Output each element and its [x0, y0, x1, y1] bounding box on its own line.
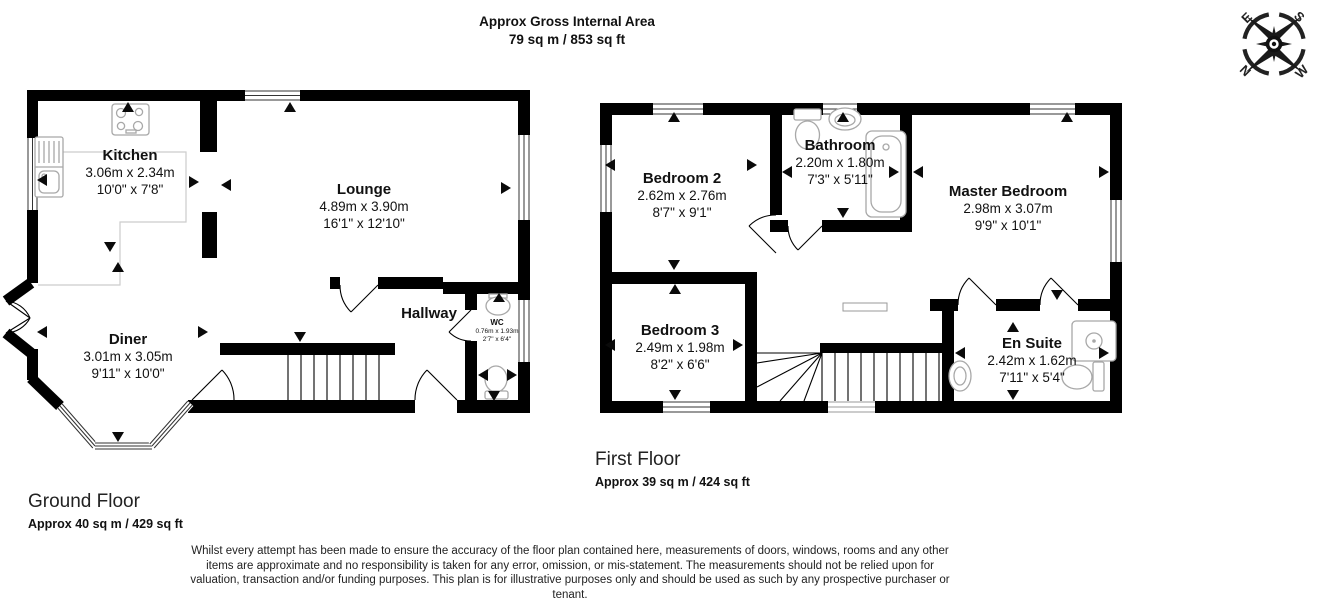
master-bedroom-name: Master Bedroom [949, 183, 1067, 201]
kitchen-name: Kitchen [85, 147, 174, 165]
gross-internal-area-title: Approx Gross Internal Area 79 sq m / 853… [479, 13, 655, 49]
gia-title-line: Approx Gross Internal Area [479, 14, 655, 29]
ensuite-metric: 2.42m x 1.62m [987, 353, 1076, 369]
ground-floor-doors [6, 285, 471, 400]
compass-hub-dot [1272, 42, 1276, 46]
ground-floor-area: Approx 40 sq m / 429 sq ft [28, 517, 183, 531]
kitchen-sink-unit [35, 137, 63, 197]
ground-floor-title: Ground Floor [28, 491, 140, 513]
room-label-hallway: Hallway [401, 305, 457, 323]
wc-metric: 0.76m x 1.93m [476, 328, 519, 336]
room-label-kitchen: Kitchen 3.06m x 2.34m 10'0" x 7'8" [85, 147, 174, 198]
diner-imperial: 9'11" x 10'0" [83, 366, 172, 382]
diner-name: Diner [83, 331, 172, 349]
bedroom2-imperial: 8'7" x 9'1" [637, 205, 726, 221]
room-label-bedroom3: Bedroom 3 2.49m x 1.98m 8'2" x 6'6" [635, 322, 724, 373]
wc-name: WC [476, 318, 519, 328]
lounge-metric: 4.89m x 3.90m [319, 199, 408, 215]
hallway-name: Hallway [401, 305, 457, 323]
room-label-ensuite: En Suite 2.42m x 1.62m 7'11" x 5'4" [987, 335, 1076, 386]
ground-floor-plan [0, 85, 565, 475]
compass-rose-icon: E S W N [1233, 2, 1315, 86]
wc-imperial: 2'7" x 6'4" [476, 336, 519, 344]
floor-plan-page: Approx Gross Internal Area 79 sq m / 853… [0, 0, 1320, 601]
bedroom3-imperial: 8'2" x 6'6" [635, 357, 724, 373]
master-bedroom-metric: 2.98m x 3.07m [949, 201, 1067, 217]
gia-subtitle-line: 79 sq m / 853 sq ft [509, 32, 625, 47]
room-label-master-bedroom: Master Bedroom 2.98m x 3.07m 9'9" x 10'1… [949, 183, 1067, 234]
first-floor-area: Approx 39 sq m / 424 sq ft [595, 475, 750, 489]
bathroom-metric: 2.20m x 1.80m [795, 155, 884, 171]
ensuite-imperial: 7'11" x 5'4" [987, 370, 1076, 386]
ensuite-sink [949, 361, 971, 391]
room-label-bathroom: Bathroom 2.20m x 1.80m 7'3" x 5'11" [795, 137, 884, 188]
ground-floor-windows [27, 90, 530, 449]
kitchen-imperial: 10'0" x 7'8" [85, 182, 174, 198]
lounge-name: Lounge [319, 181, 408, 199]
ensuite-shower [1072, 321, 1116, 361]
ground-floor-stairs [288, 355, 379, 400]
bedroom2-name: Bedroom 2 [637, 170, 726, 188]
lounge-imperial: 16'1" x 12'10" [319, 216, 408, 232]
bathroom-name: Bathroom [795, 137, 884, 155]
bedroom3-metric: 2.49m x 1.98m [635, 340, 724, 356]
master-bedroom-imperial: 9'9" x 10'1" [949, 218, 1067, 234]
first-floor-stairs [757, 353, 939, 401]
kitchen-metric: 3.06m x 2.34m [85, 165, 174, 181]
bedroom2-metric: 2.62m x 2.76m [637, 188, 726, 204]
room-label-lounge: Lounge 4.89m x 3.90m 16'1" x 12'10" [319, 181, 408, 232]
disclaimer-text: Whilst every attempt has been made to en… [189, 544, 951, 601]
room-label-wc: WC 0.76m x 1.93m 2'7" x 6'4" [476, 318, 519, 344]
first-floor-title: First Floor [595, 449, 681, 471]
room-label-bedroom2: Bedroom 2 2.62m x 2.76m 8'7" x 9'1" [637, 170, 726, 221]
room-label-diner: Diner 3.01m x 3.05m 9'11" x 10'0" [83, 331, 172, 382]
diner-metric: 3.01m x 3.05m [83, 349, 172, 365]
bedroom3-name: Bedroom 3 [635, 322, 724, 340]
bathroom-imperial: 7'3" x 5'11" [795, 172, 884, 188]
ensuite-name: En Suite [987, 335, 1076, 353]
